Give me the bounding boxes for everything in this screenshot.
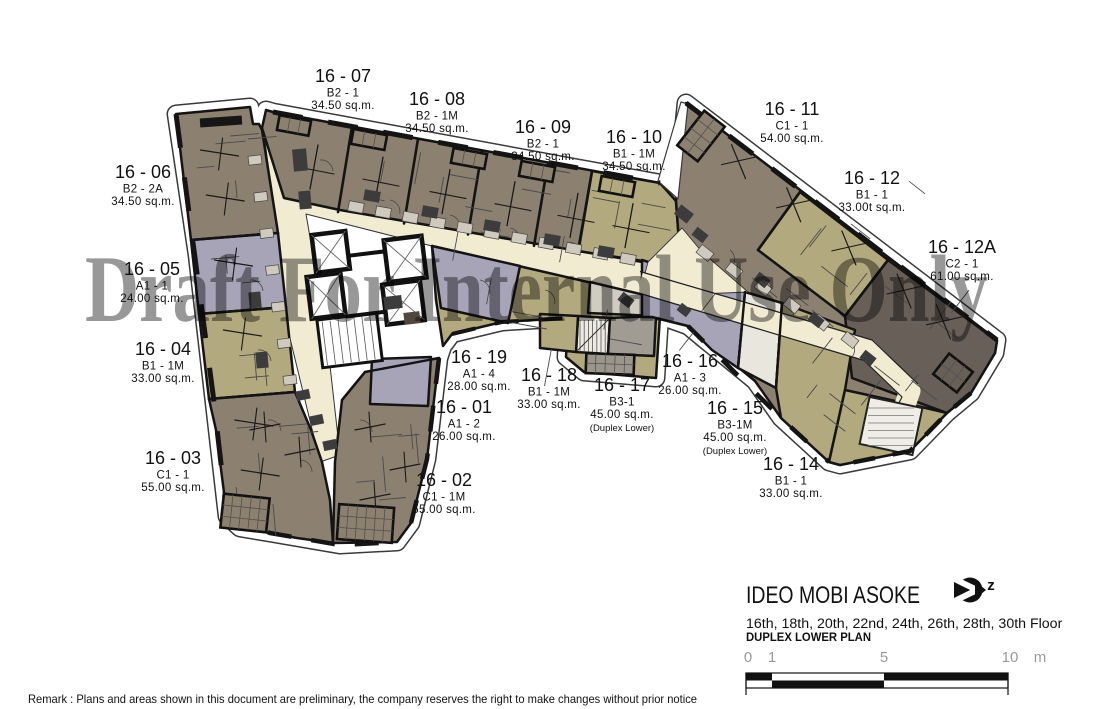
svg-text:B2 - 1: B2 - 1: [527, 139, 559, 151]
svg-text:55.00 sq.m.: 55.00 sq.m.: [141, 482, 204, 494]
svg-text:z: z: [987, 577, 995, 594]
svg-text:m: m: [1034, 649, 1047, 666]
svg-text:16 - 08: 16 - 08: [409, 89, 465, 109]
svg-text:B1 - 1: B1 - 1: [856, 190, 888, 202]
svg-text:A1 - 4: A1 - 4: [463, 369, 496, 381]
svg-text:Draft For Internal Use Only: Draft For Internal Use Only: [85, 236, 988, 342]
svg-text:A1 - 3: A1 - 3: [674, 373, 706, 385]
svg-text:DUPLEX LOWER PLAN: DUPLEX LOWER PLAN: [746, 632, 871, 644]
svg-text:33.00 sq.m.: 33.00 sq.m.: [131, 373, 194, 385]
svg-text:16 - 18: 16 - 18: [521, 365, 577, 385]
svg-text:33.00t sq.m.: 33.00t sq.m.: [839, 202, 906, 214]
svg-text:16 - 10: 16 - 10: [606, 127, 662, 147]
svg-text:C1 - 1: C1 - 1: [775, 121, 808, 133]
svg-text:10: 10: [1002, 649, 1019, 666]
svg-text:16 - 09: 16 - 09: [515, 117, 571, 137]
svg-text:28.00 sq.m.: 28.00 sq.m.: [447, 381, 510, 393]
svg-text:34.50 sq.m.: 34.50 sq.m.: [311, 100, 374, 112]
svg-text:34.50 sq.m.: 34.50 sq.m.: [511, 151, 574, 163]
svg-text:16 - 06: 16 - 06: [115, 162, 171, 182]
svg-text:16 - 12: 16 - 12: [844, 168, 900, 188]
svg-text:16 - 02: 16 - 02: [416, 470, 472, 490]
svg-text:34.50 sq.m.: 34.50 sq.m.: [405, 123, 468, 135]
svg-text:B2 - 1M: B2 - 1M: [416, 111, 458, 123]
svg-text:B3-1: B3-1: [609, 397, 635, 409]
svg-text:16 - 19: 16 - 19: [451, 347, 507, 367]
svg-text:B2 - 2A: B2 - 2A: [123, 184, 163, 196]
svg-text:A1 - 2: A1 - 2: [448, 419, 480, 431]
svg-text:26.00 sq.m.: 26.00 sq.m.: [658, 385, 721, 397]
svg-text:A1 - 1: A1 - 1: [136, 281, 168, 293]
svg-text:16 - 01: 16 - 01: [436, 397, 492, 417]
svg-text:IDEO MOBI ASOKE: IDEO MOBI ASOKE: [746, 582, 920, 609]
svg-text:16 - 12A: 16 - 12A: [928, 237, 996, 257]
svg-text:B1 - 1M: B1 - 1M: [142, 361, 184, 373]
svg-text:33.00 sq.m.: 33.00 sq.m.: [759, 488, 822, 500]
svg-text:33.00 sq.m.: 33.00 sq.m.: [517, 399, 580, 411]
svg-text:16 - 07: 16 - 07: [315, 66, 371, 86]
svg-text:55.00 sq.m.: 55.00 sq.m.: [412, 504, 475, 516]
svg-text:16 - 14: 16 - 14: [763, 454, 819, 474]
svg-text:5: 5: [880, 649, 888, 666]
svg-text:B2 - 1: B2 - 1: [327, 88, 359, 100]
svg-text:(Duplex Lower): (Duplex Lower): [703, 446, 767, 457]
svg-text:0: 0: [744, 649, 752, 666]
svg-text:16 - 11: 16 - 11: [765, 99, 820, 119]
svg-text:C2 - 1: C2 - 1: [945, 259, 978, 271]
svg-text:C1 - 1M: C1 - 1M: [423, 492, 466, 504]
svg-text:45.00 sq.m.: 45.00 sq.m.: [590, 409, 653, 421]
svg-text:16 - 04: 16 - 04: [135, 339, 191, 359]
svg-text:B1 - 1M: B1 - 1M: [528, 387, 570, 399]
svg-text:1: 1: [768, 649, 776, 666]
svg-text:B1 - 1M: B1 - 1M: [613, 149, 655, 161]
svg-text:24.00 sq.m.: 24.00 sq.m.: [120, 293, 183, 305]
svg-text:B3-1M: B3-1M: [717, 420, 752, 432]
svg-text:16 - 16: 16 - 16: [662, 351, 718, 371]
svg-text:16 - 15: 16 - 15: [707, 398, 763, 418]
svg-text:34.50 sq.m.: 34.50 sq.m.: [111, 196, 174, 208]
svg-text:26.00 sq.m.: 26.00 sq.m.: [432, 431, 495, 443]
svg-text:Remark : Plans and areas shown: Remark : Plans and areas shown in this d…: [28, 692, 697, 706]
svg-text:54.00 sq.m.: 54.00 sq.m.: [760, 133, 823, 145]
svg-text:B1 - 1: B1 - 1: [775, 476, 807, 488]
svg-text:16 - 05: 16 - 05: [124, 259, 180, 279]
svg-text:34.50 sq.m.: 34.50 sq.m.: [602, 161, 665, 173]
svg-text:16 - 03: 16 - 03: [145, 448, 201, 468]
svg-text:(Duplex Lower): (Duplex Lower): [590, 423, 654, 434]
svg-text:61.00 sq.m.: 61.00 sq.m.: [930, 271, 993, 283]
svg-text:16 - 17: 16 - 17: [594, 375, 650, 395]
svg-text:C1 - 1: C1 - 1: [156, 470, 189, 482]
svg-text:16th, 18th, 20th, 22nd, 24th,: 16th, 18th, 20th, 22nd, 24th, 26th, 28th…: [746, 616, 1063, 632]
svg-text:45.00 sq.m.: 45.00 sq.m.: [703, 432, 766, 444]
